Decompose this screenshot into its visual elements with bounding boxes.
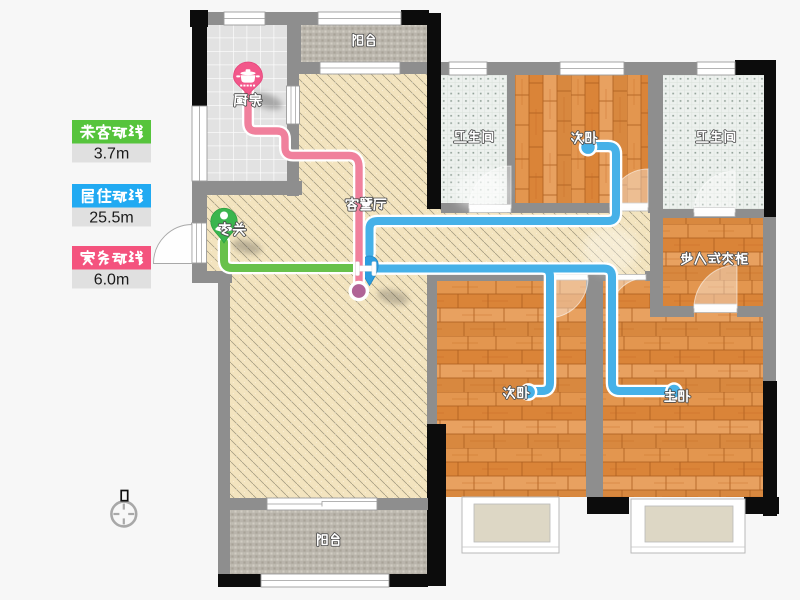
svg-text:25.5m: 25.5m (89, 210, 133, 227)
svg-text:3.7m: 3.7m (94, 146, 130, 163)
svg-text:6.0m: 6.0m (94, 272, 130, 289)
